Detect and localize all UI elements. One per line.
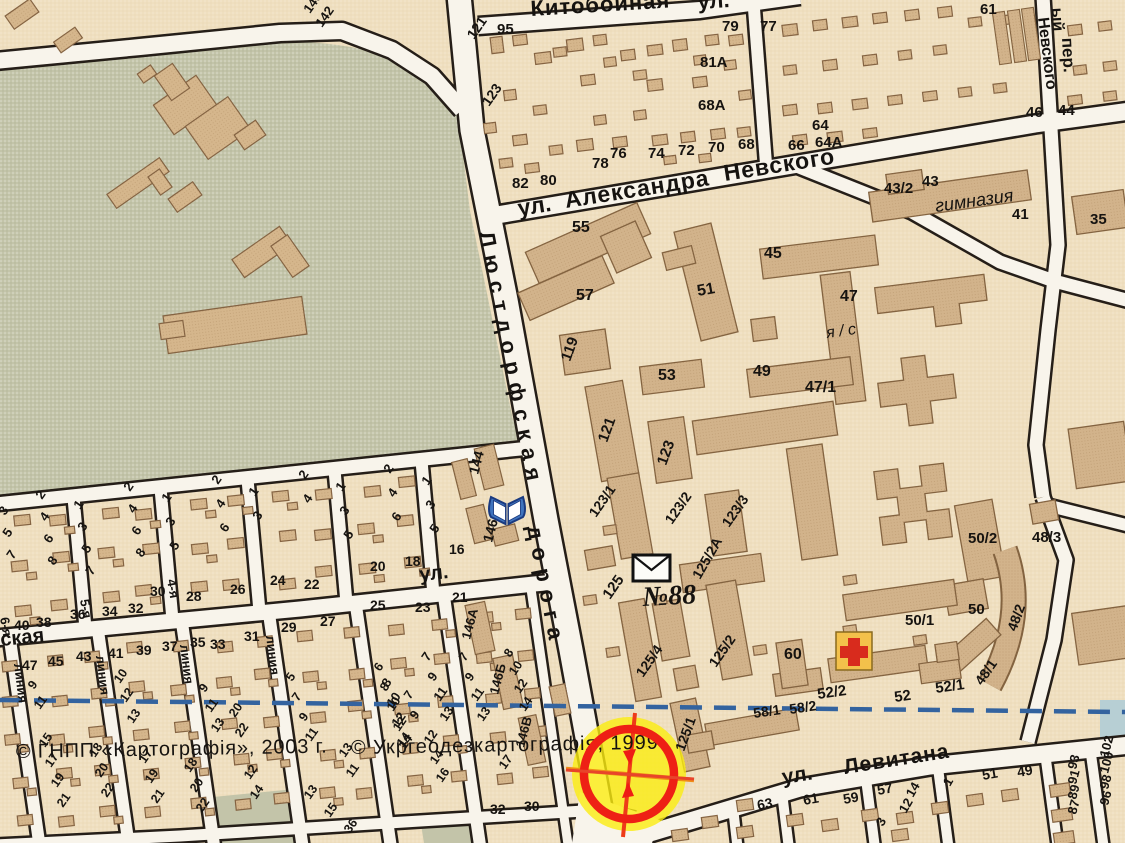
svg-text:43/2: 43/2 [884, 180, 913, 197]
svg-text:ул.: ул. [780, 761, 814, 789]
svg-text:72: 72 [678, 142, 695, 159]
svg-text:20: 20 [370, 558, 386, 574]
svg-text:49: 49 [1016, 761, 1034, 779]
svg-text:34: 34 [102, 603, 118, 619]
svg-text:68: 68 [738, 136, 755, 153]
svg-text:44: 44 [1058, 102, 1075, 119]
svg-text:51: 51 [981, 764, 999, 782]
svg-text:33: 33 [210, 636, 226, 652]
svg-text:№88: №88 [641, 579, 697, 613]
svg-text:47: 47 [840, 288, 858, 305]
svg-text:45: 45 [48, 653, 64, 669]
svg-text:45: 45 [764, 245, 782, 262]
svg-text:26: 26 [230, 581, 246, 597]
svg-text:18: 18 [405, 553, 421, 569]
svg-text:76: 76 [610, 145, 627, 162]
svg-text:пер.: пер. [1058, 37, 1079, 73]
svg-text:30: 30 [524, 798, 540, 814]
svg-text:21: 21 [452, 589, 468, 605]
svg-text:53: 53 [658, 367, 676, 384]
svg-text:38: 38 [36, 614, 52, 630]
svg-text:37: 37 [162, 638, 178, 654]
svg-text:63: 63 [756, 794, 774, 812]
svg-text:52: 52 [893, 687, 912, 706]
svg-text:23: 23 [415, 599, 431, 615]
svg-text:24: 24 [270, 572, 286, 588]
svg-text:78: 78 [592, 155, 609, 172]
svg-text:28: 28 [186, 588, 202, 604]
svg-text:95: 95 [497, 21, 514, 38]
svg-text:70: 70 [708, 139, 725, 156]
svg-text:64: 64 [812, 117, 829, 134]
svg-text:77: 77 [760, 18, 777, 35]
svg-text:60: 60 [784, 646, 802, 663]
svg-text:6-я: 6-я [0, 616, 15, 637]
svg-text:ул.: ул. [418, 561, 449, 586]
svg-text:74: 74 [648, 145, 665, 162]
svg-text:43: 43 [76, 648, 92, 664]
svg-text:25: 25 [370, 597, 386, 613]
svg-text:50/2: 50/2 [968, 530, 997, 547]
svg-text:81А: 81А [700, 54, 728, 71]
svg-text:32: 32 [128, 600, 144, 616]
svg-text:68А: 68А [698, 97, 726, 114]
svg-text:41: 41 [1012, 206, 1029, 223]
svg-text:30: 30 [150, 583, 166, 599]
svg-text:35: 35 [1090, 211, 1107, 228]
svg-text:82: 82 [512, 175, 529, 192]
svg-text:31: 31 [244, 628, 260, 644]
svg-text:80: 80 [540, 172, 557, 189]
svg-text:ый: ый [1048, 7, 1066, 31]
svg-text:66: 66 [788, 137, 805, 154]
svg-text:49: 49 [753, 363, 771, 380]
svg-text:48/3: 48/3 [1032, 529, 1061, 546]
svg-text:ул.: ул. [516, 190, 553, 221]
svg-text:50/1: 50/1 [905, 612, 934, 629]
svg-text:43: 43 [922, 173, 939, 190]
svg-text:79: 79 [722, 18, 739, 35]
svg-text:61: 61 [980, 1, 997, 18]
svg-text:29: 29 [281, 619, 297, 635]
svg-text:57: 57 [576, 287, 594, 304]
svg-text:46: 46 [1026, 104, 1043, 121]
svg-text:57: 57 [876, 779, 894, 797]
svg-text:41: 41 [108, 645, 124, 661]
svg-text:40: 40 [14, 617, 30, 633]
svg-text:47/1: 47/1 [805, 379, 836, 396]
svg-text:ул.: ул. [697, 0, 731, 14]
svg-text:27: 27 [320, 613, 336, 629]
svg-text:39: 39 [136, 642, 152, 658]
svg-text:61: 61 [802, 789, 820, 807]
svg-text:51: 51 [696, 280, 717, 300]
svg-text:22: 22 [304, 576, 320, 592]
svg-text:16: 16 [449, 541, 465, 557]
svg-text:32: 32 [490, 801, 506, 817]
svg-text:55: 55 [572, 219, 590, 236]
svg-text:50: 50 [968, 601, 985, 618]
svg-text:64А: 64А [815, 134, 843, 151]
svg-text:59: 59 [842, 788, 860, 806]
